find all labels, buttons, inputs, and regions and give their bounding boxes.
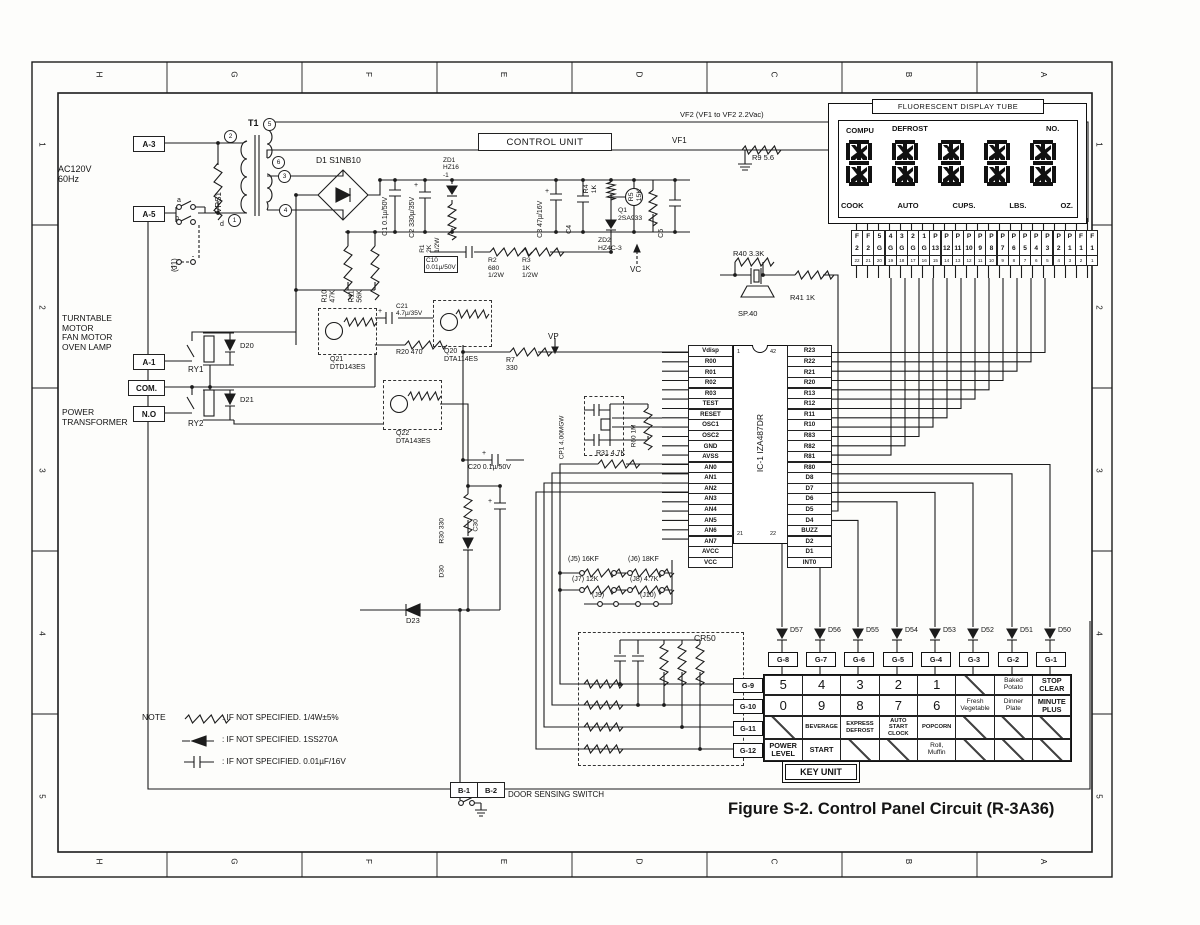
display-connector-pin: P 5 7 (1019, 230, 1031, 266)
key-diode-label: D50 (1058, 627, 1071, 635)
key-row-box: G-9 (733, 678, 763, 693)
t1-pin5: 5 (263, 118, 276, 131)
label-door-switch: DOOR SENSING SWITCH (508, 791, 604, 800)
key-diode-label: D52 (981, 627, 994, 635)
display-connector-pin: P 4 6 (1030, 230, 1042, 266)
label-j8: (J8) 4.7K (630, 576, 658, 584)
display-bottom-label: COOK (841, 201, 864, 210)
key-cell: POWER LEVEL (764, 739, 803, 762)
t1-pin6: 6 (272, 156, 285, 169)
label-zd1: ZD1 HZ16 -1 (443, 157, 459, 179)
label-r11: R11 56K (348, 290, 364, 302)
label-sw-a: a (177, 197, 181, 205)
key-cell: 7 (879, 695, 918, 717)
label-c5: C5 (658, 229, 666, 238)
connector-com: COM. (128, 380, 165, 396)
display-label-defrost: DEFROST (892, 124, 928, 133)
plus-c21: + (378, 308, 382, 316)
label-r3: R3 1K 1/2W (522, 257, 538, 280)
note-item-resistor: : IF NOT SPECIFIED. 1/4W±5% (222, 713, 339, 722)
display-bottom-labels: COOKAUTOCUPS.LBS.OZ. (841, 201, 1073, 210)
key-matrix: 54321Baked PotatoSTOP CLEAR09876Fresh Ve… (763, 674, 1072, 762)
label-vp: VP (548, 333, 559, 342)
label-sw-d: d (220, 221, 224, 229)
key-cell: Dinner Plate (994, 695, 1033, 717)
seg-digit (938, 140, 964, 186)
label-c21: C21 4.7µ/35V (396, 303, 422, 318)
display-connector-pin: F 1 2 (1075, 230, 1087, 266)
zone-label: 2 (38, 305, 47, 309)
plus-c3: + (545, 188, 549, 196)
label-cp1: CP1 4.00MGW (559, 416, 566, 460)
label-c20: C20 0.1µ/50V (468, 464, 511, 472)
label-sw-c: c (172, 265, 176, 273)
key-diode-label: D55 (866, 627, 879, 635)
key-cell: 6 (917, 695, 956, 717)
key-cell (955, 675, 994, 696)
zone-label: B (904, 72, 913, 77)
key-cell (994, 716, 1033, 740)
key-cell: EXPRESS DEFROST (840, 716, 879, 740)
key-cell: STOP CLEAR (1032, 675, 1071, 696)
label-d30: D30 (438, 565, 446, 577)
key-diode-label: D54 (905, 627, 918, 635)
key-cell: Roll, Muffin (917, 739, 956, 762)
seg-digit (1030, 140, 1056, 186)
ic-pin-label: VCC (688, 557, 733, 568)
label-d23: D23 (406, 617, 420, 625)
display-label-compu: COMPU (846, 126, 874, 135)
key-cell (764, 716, 803, 740)
zone-label: E (499, 859, 508, 864)
key-cell (879, 739, 918, 762)
t1-pin2: 2 (224, 130, 237, 143)
plus-c20: + (482, 450, 486, 458)
label-c2: C2 330µ/35V (409, 197, 417, 238)
key-col-box: G-2 (998, 652, 1028, 667)
zone-label: 1 (38, 142, 47, 146)
key-diode-label: D51 (1020, 627, 1033, 635)
label-vrs1: VRS1 (215, 192, 224, 213)
key-cell (840, 739, 879, 762)
ic-left-pins: VdispR00R01R02R03TESTRESETOSC1OSC2GNDAVS… (688, 346, 733, 568)
label-ac-source: AC120V 60Hz (58, 164, 92, 184)
t1-pin3: 3 (278, 170, 291, 183)
zone-label: F (364, 72, 373, 77)
label-c10: C10 0.01µ/50V (424, 256, 458, 273)
key-cell: BEVERAGE (802, 716, 841, 740)
label-r4: R4 1K (583, 185, 598, 194)
label-c30: C30 (472, 519, 480, 531)
key-cell (1032, 716, 1071, 740)
key-cell: 5 (764, 675, 803, 696)
key-diode-label: D53 (943, 627, 956, 635)
label-r2: R2 680 1/2W (488, 257, 504, 280)
connector-no: N.O (133, 406, 165, 422)
display-connector-pin: P 13 15 (929, 230, 941, 266)
label-ry2: RY2 (188, 420, 203, 429)
key-row-box: G-11 (733, 721, 763, 736)
key-diode-label: D57 (790, 627, 803, 635)
display-connector-pin: 4 G 19 (885, 230, 897, 266)
zone-label: 3 (1095, 468, 1104, 472)
label-sp40: SP.40 (738, 310, 757, 318)
label-q21: Q21 DTD143ES (330, 356, 365, 372)
key-cell (994, 739, 1033, 762)
label-d20: D20 (240, 342, 254, 350)
label-j7: (J7) 12K (572, 576, 598, 584)
key-cell: 3 (840, 675, 879, 696)
zone-label: D (634, 859, 643, 865)
key-col-box: G-6 (844, 652, 874, 667)
label-j5: (J5) 16KF (568, 556, 599, 564)
label-r10: R10 47K (321, 290, 337, 303)
key-cell: 9 (802, 695, 841, 717)
zone-label: G (230, 858, 239, 864)
control-unit-box: CONTROL UNIT (478, 133, 612, 151)
label-r7: R7 330 (506, 357, 518, 373)
display-connector-pin: P 3 5 (1041, 230, 1053, 266)
display-connector-pin: P 10 12 (963, 230, 975, 266)
label-r40: R40 3.3K (733, 250, 764, 258)
display-connector-pin: 1 G 16 (918, 230, 930, 266)
key-row-box: G-10 (733, 699, 763, 714)
key-cell: MINUTE PLUS (1032, 695, 1071, 717)
note-title: NOTE (142, 713, 166, 723)
zone-label: A (1039, 859, 1048, 864)
key-cell: START (802, 739, 841, 762)
label-r30: R30 330 (438, 518, 446, 544)
label-c4: C4 (566, 225, 574, 234)
key-cell (955, 716, 994, 740)
display-connector-pin: F 1 1 (1086, 230, 1098, 266)
key-cell (955, 739, 994, 762)
zone-label: A (1039, 72, 1048, 77)
display-digits (846, 140, 1068, 186)
display-connector-pin: 2 G 17 (907, 230, 919, 266)
seg-digit (892, 140, 918, 186)
zone-label: E (499, 72, 508, 77)
key-diode-label: D56 (828, 627, 841, 635)
label-r41: R41 1K (790, 294, 815, 302)
label-j9: (J9) (592, 592, 604, 600)
label-t1: T1 (248, 118, 259, 128)
key-col-box: G-4 (921, 652, 951, 667)
q22-dashed-box (383, 380, 442, 430)
zone-label: 5 (38, 794, 47, 798)
key-cell: 0 (764, 695, 803, 717)
key-cell: Baked Potato (994, 675, 1033, 696)
ic-pin-number-22: 22 (770, 531, 776, 537)
ic-pin-number-21: 21 (737, 531, 743, 537)
zone-label: G (230, 71, 239, 77)
q21-dashed-box (318, 308, 377, 355)
label-vf2: VF2 (VF1 to VF2 2.2Vac) (680, 111, 764, 119)
connector-b2: B-2 (477, 782, 505, 798)
display-connector-pin: P 8 10 (985, 230, 997, 266)
label-vc: VC (630, 266, 641, 275)
zone-label: D (634, 72, 643, 78)
note-item-diode: : IF NOT SPECIFIED. 1SS270A (222, 735, 338, 744)
note-item-capacitor: : IF NOT SPECIFIED. 0.01µF/16V (222, 757, 346, 766)
label-r60: R60 1M (631, 425, 638, 448)
zone-label: 2 (1095, 305, 1104, 309)
label-sw-b: b (175, 215, 179, 223)
zone-label: B (904, 859, 913, 864)
plus-c30: + (488, 498, 492, 506)
ic-body: IC-1 IZA487DR (733, 345, 788, 544)
seg-digit (984, 140, 1010, 186)
key-cell: Fresh Vegetable (955, 695, 994, 717)
connector-a5: A-5 (133, 206, 165, 222)
ic-name: IC-1 IZA487DR (755, 355, 765, 531)
label-q22: Q22 DTA143ES (396, 430, 431, 446)
label-r9: R9 5.6 (752, 154, 774, 162)
label-c3: C3 47µ/16V (537, 201, 545, 238)
key-cell: 4 (802, 675, 841, 696)
zone-label: F (364, 859, 373, 864)
label-r5: R5 15K (628, 189, 643, 201)
key-cell (1032, 739, 1071, 762)
label-q20: Q20 DTA114ES (444, 348, 478, 364)
label-j10: (J10) (640, 592, 656, 600)
display-connector: F 2 22 F 2 21 5 G 20 4 G 19 3 G 18 2 G 1… (851, 230, 1097, 266)
zone-label: 5 (1095, 794, 1104, 798)
display-connector-pin: 3 G 18 (896, 230, 908, 266)
key-row-box: G-12 (733, 743, 763, 758)
t1-pin1: 1 (228, 214, 241, 227)
q20-dashed-box (433, 300, 492, 347)
display-bottom-label: CUPS. (953, 201, 976, 210)
zone-label: 3 (38, 468, 47, 472)
key-col-box: G-7 (806, 652, 836, 667)
display-bottom-label: OZ. (1060, 201, 1073, 210)
key-col-box: G-8 (768, 652, 798, 667)
t1-pin4: 4 (279, 204, 292, 217)
display-bottom-label: LBS. (1009, 201, 1026, 210)
key-cell: AUTO START CLOCK (879, 716, 918, 740)
label-d21: D21 (240, 396, 254, 404)
display-connector-pin: P 9 11 (974, 230, 986, 266)
connector-a3: A-3 (133, 136, 165, 152)
zone-label: C (769, 72, 778, 78)
display-connector-pin: F 2 21 (862, 230, 874, 266)
zone-label: H (94, 859, 103, 865)
ic-pin-label: INT0 (787, 557, 832, 568)
ic-pin-number-42: 42 (770, 349, 776, 355)
connector-b1: B-1 (450, 782, 478, 798)
label-q1: Q1 2SA933 (618, 207, 642, 222)
ic-right-pins: R23R22R21R20R13R12R11R10R83R82R81R80D8D7… (787, 346, 832, 568)
display-tube-title: FLUORESCENT DISPLAY TUBE (872, 99, 1044, 114)
figure-caption: Figure S-2. Control Panel Circuit (R-3A3… (728, 800, 1054, 819)
display-bottom-label: AUTO (897, 201, 918, 210)
display-label-no: NO. (1046, 124, 1059, 133)
cr50-dashed-box (578, 632, 744, 766)
label-j6: (J6) 18KF (628, 556, 659, 564)
label-c1: C1 0.1µ/50V (382, 197, 390, 236)
display-connector-pin: 5 G 20 (873, 230, 885, 266)
connector-a1: A-1 (133, 354, 165, 370)
label-ry1: RY1 (188, 366, 203, 375)
key-cell: 1 (917, 675, 956, 696)
schematic-page: AC120V 60Hz A-3 A-5 A-1 COM. N.O B-1 B-2… (0, 0, 1200, 925)
display-connector-pin: P 11 13 (952, 230, 964, 266)
display-connector-pin: P 12 14 (941, 230, 953, 266)
key-col-box: G-1 (1036, 652, 1066, 667)
display-connector-pin: P 6 8 (1008, 230, 1020, 266)
key-col-box: G-5 (883, 652, 913, 667)
label-power-transformer: POWER TRANSFORMER (62, 408, 128, 427)
display-connector-pin: P 2 4 (1053, 230, 1065, 266)
plus-c2: + (414, 182, 418, 190)
seg-digit (846, 140, 872, 186)
label-turntable: TURNTABLE MOTOR FAN MOTOR OVEN LAMP (62, 314, 112, 352)
display-connector-pin: P 7 9 (997, 230, 1009, 266)
key-unit-title-box: KEY UNIT (785, 764, 857, 780)
key-cell: POPCORN (917, 716, 956, 740)
label-r1: R1 2K 1/2W (419, 238, 441, 253)
cp1-dashed-box (584, 396, 624, 456)
display-connector-pin: F 2 22 (851, 230, 863, 266)
label-d1: D1 S1NB10 (316, 156, 361, 166)
zone-label: 4 (1095, 631, 1104, 635)
zone-label: C (769, 859, 778, 865)
label-vf1: VF1 (672, 137, 687, 146)
label-r20: R20 470 (396, 349, 422, 357)
key-cell: 8 (840, 695, 879, 717)
zone-label: 4 (38, 631, 47, 635)
key-col-box: G-3 (959, 652, 989, 667)
zone-label: 1 (1095, 142, 1104, 146)
ic-pin-number-1: 1 (737, 349, 740, 355)
zone-label: H (94, 72, 103, 78)
key-cell: 2 (879, 675, 918, 696)
display-connector-pin: P 1 3 (1064, 230, 1076, 266)
label-zd2: ZD2 HZ4C-3 (598, 237, 622, 252)
